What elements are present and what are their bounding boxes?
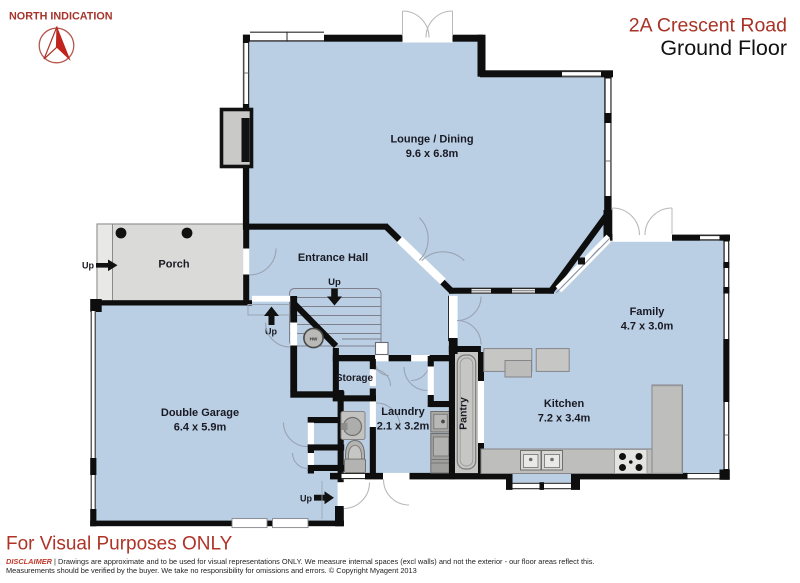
svg-text:Kitchen: Kitchen [544,398,585,410]
svg-text:6.4 x 5.9m: 6.4 x 5.9m [174,422,227,434]
svg-text:For Visual Purposes ONLY: For Visual Purposes ONLY [6,534,233,555]
svg-text:Up: Up [82,261,94,271]
svg-text:Up: Up [300,494,312,504]
svg-text:Lounge / Dining: Lounge / Dining [390,134,473,146]
svg-text:4.7 x 3.0m: 4.7 x 3.0m [621,321,674,333]
svg-text:Family: Family [630,306,666,318]
svg-text:Entrance Hall: Entrance Hall [298,252,368,264]
svg-text:Storage: Storage [336,373,374,384]
svg-text:2A Crescent Road: 2A Crescent Road [629,15,787,37]
svg-text:Pantry: Pantry [457,397,469,430]
svg-text:DISCLAIMER | Drawings are appr: DISCLAIMER | Drawings are approximate an… [6,557,595,566]
svg-text:HW: HW [310,337,318,342]
svg-text:Up: Up [328,277,341,288]
svg-text:Porch: Porch [158,259,189,271]
svg-text:NORTH INDICATION: NORTH INDICATION [9,11,113,23]
svg-text:Ground Floor: Ground Floor [660,36,787,60]
svg-text:2.1 x 3.2m: 2.1 x 3.2m [377,421,430,433]
svg-text:Measurements should be verifie: Measurements should be verified by the b… [6,566,417,575]
svg-text:7.2 x 3.4m: 7.2 x 3.4m [538,413,591,425]
svg-text:9.6 x 6.8m: 9.6 x 6.8m [406,148,459,160]
svg-text:Double Garage: Double Garage [161,407,239,419]
svg-text:Laundry: Laundry [381,406,425,418]
